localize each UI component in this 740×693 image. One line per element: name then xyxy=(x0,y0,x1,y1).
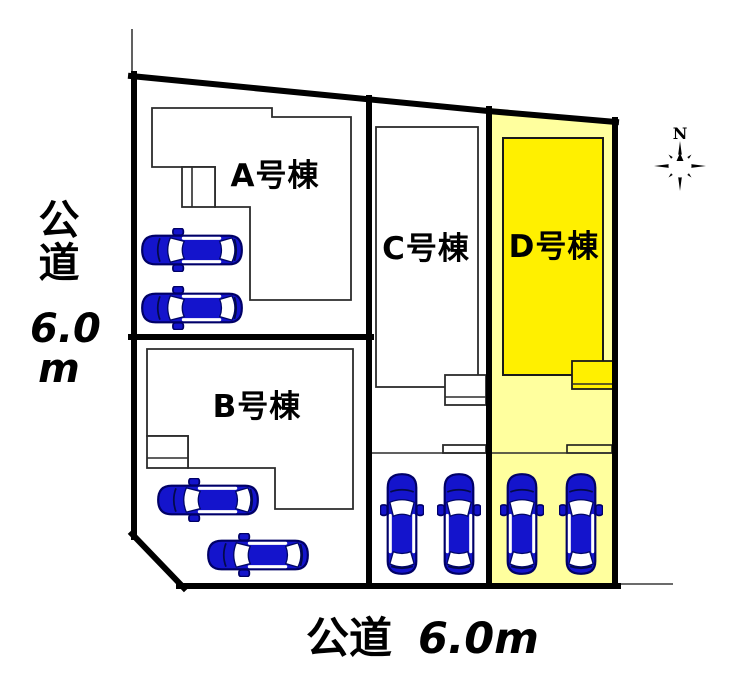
road-label-bottom: 公道 6.0m xyxy=(306,618,539,661)
road-left-name: 公道 xyxy=(30,199,88,285)
car-icon-d2 xyxy=(559,474,602,574)
building-d-label: D号棟 xyxy=(509,229,600,265)
site-plan-page: A号棟 B号棟 C号棟 D号棟 N 公道 6.0 m 公道 6.0m xyxy=(0,0,740,693)
building-a-label: A号棟 xyxy=(231,158,320,194)
road-bottom-width: 6.0m xyxy=(418,618,539,661)
car-icon-b1 xyxy=(158,478,258,521)
car-icon-a2 xyxy=(142,286,242,329)
car-icon-d1 xyxy=(500,474,543,574)
building-c-label: C号棟 xyxy=(382,231,470,267)
car-icon-c2 xyxy=(437,474,480,574)
road-left-unit: m xyxy=(30,349,88,389)
building-c-porch xyxy=(445,375,486,405)
road-label-left: 公道 6.0 m xyxy=(30,199,88,389)
building-b-label: B号棟 xyxy=(213,389,302,425)
compass-icon: N xyxy=(654,124,706,191)
compass-north-label: N xyxy=(673,124,688,143)
car-icon-b2 xyxy=(208,533,308,576)
building-c-approach-step xyxy=(443,445,486,453)
car-icon-a1 xyxy=(142,228,242,271)
building-a-porch xyxy=(182,167,215,207)
road-left-width: 6.0 xyxy=(30,309,88,349)
building-d-approach-step xyxy=(567,445,612,453)
car-icon-c1 xyxy=(380,474,423,574)
building-b-porch xyxy=(147,436,188,468)
boundary-chamfer xyxy=(132,534,184,588)
site-plan-drawing: A号棟 B号棟 C号棟 D号棟 N xyxy=(0,0,740,693)
road-bottom-name: 公道 xyxy=(306,618,392,661)
